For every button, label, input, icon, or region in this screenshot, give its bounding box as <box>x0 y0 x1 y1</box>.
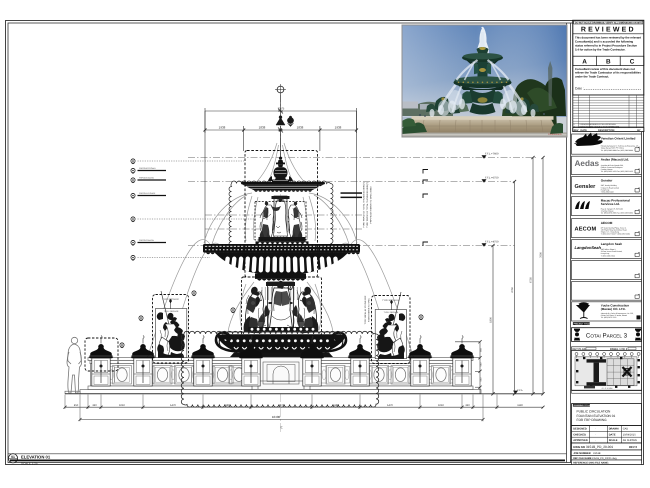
svg-text:TYPE SRP04-01 STATUE FRP: TYPE SRP04-01 STATUE FRP <box>364 295 367 324</box>
svg-text:T 852.2868.9108: T 852.2868.9108 <box>601 191 614 194</box>
svg-text:Gensler: Gensler <box>601 178 613 182</box>
svg-text:ELEVATION 01: ELEVATION 01 <box>21 455 51 460</box>
svg-text:01: 01 <box>11 455 15 459</box>
svg-text:TYPE 'FRP02-01' TOTAL THICKNES: TYPE 'FRP02-01' TOTAL THICKNESS 6MM(T) <box>366 182 369 228</box>
svg-text:F.F.L +7600: F.F.L +7600 <box>485 153 499 156</box>
svg-text:FOR FRP DRAWING: FOR FRP DRAWING <box>577 418 608 422</box>
svg-text:DATE: DATE <box>609 433 616 436</box>
svg-text:1470: 1470 <box>387 404 393 407</box>
svg-text:REV 0: REV 0 <box>629 445 638 449</box>
svg-text:DRAWN: DRAWN <box>609 428 619 431</box>
svg-text:CHECKED: CHECKED <box>573 433 586 436</box>
svg-text:T: (852) 2830 3500: T: (852) 2830 3500 <box>601 254 615 257</box>
svg-text:Tel: (853) 2833 1622 Fax: (85: Tel: (853) 2833 1622 Fax: (853) 2833 163… <box>601 170 633 173</box>
svg-text:Tel: (853) 2878 2896 Fax: (85: Tel: (853) 2878 2896 Fax: (853) 2878 289… <box>601 212 633 215</box>
svg-text:1838: 1838 <box>259 126 266 130</box>
svg-text:Services Ltd.: Services Ltd. <box>601 202 620 206</box>
svg-text:AS SHOWN: AS SHOWN <box>623 439 637 442</box>
svg-text:F.F.L: F.F.L <box>518 389 524 392</box>
svg-text:FRP02-03 BASIN: FRP02-03 BASIN <box>139 239 154 242</box>
svg-text:B: B <box>606 59 611 66</box>
svg-text:JOB NUMBER: JOB NUMBER <box>573 452 591 455</box>
svg-text:06/06/2015: 06/06/2015 <box>580 125 592 128</box>
svg-text:1180: 1180 <box>333 404 339 407</box>
svg-text:DATE: DATE <box>581 129 588 132</box>
svg-text:4750: 4750 <box>511 287 514 293</box>
svg-text:Gensler: Gensler <box>575 183 597 190</box>
svg-text:FRP02-06 CROWN: FRP02-06 CROWN <box>139 167 156 170</box>
svg-text:Aedas (Macau) Ltd.: Aedas (Macau) Ltd. <box>601 157 630 161</box>
svg-text:1838: 1838 <box>297 126 304 130</box>
svg-text:©Fotosearch: ©Fotosearch <box>548 133 562 136</box>
svg-text:10/04/2015: 10/04/2015 <box>623 433 637 436</box>
svg-text:BY: BY <box>637 129 641 132</box>
svg-text:DESIGNED: DESIGNED <box>573 428 587 431</box>
svg-text:Date :: Date : <box>575 87 584 91</box>
svg-text:DWG NO: DWG NO <box>573 445 586 449</box>
svg-text:Venetian Orient Limited: Venetian Orient Limited <box>601 136 636 140</box>
svg-text:-: - <box>595 439 596 442</box>
svg-text:330: 330 <box>92 404 97 407</box>
svg-text:1800: 1800 <box>490 317 493 323</box>
svg-text:SCALE: SCALE <box>609 439 618 442</box>
svg-text:330: 330 <box>465 404 470 407</box>
svg-text:-: - <box>595 433 596 436</box>
svg-text:PUBLIC CIRCULATION: PUBLIC CIRCULATION <box>577 409 611 413</box>
svg-text:0 1 2 5 10M: 0 1 2 5 10M <box>602 387 613 390</box>
svg-text:DESCRIPTION: DESCRIPTION <box>598 129 615 132</box>
svg-text:TYPE:SRP04-01: TYPE:SRP04-01 <box>382 299 399 302</box>
svg-text:DO NOT SCALE DRAWINGS. VERIFY: DO NOT SCALE DRAWINGS. VERIFY ALL DIMENS… <box>575 22 642 25</box>
svg-text:7600: 7600 <box>540 252 543 258</box>
svg-text:COTAI PARCEL 3: COTAI PARCEL 3 <box>586 332 628 339</box>
svg-text:1180: 1180 <box>224 404 230 407</box>
svg-text:TYPE 'FRP02-02' TOTAL THICKNES: TYPE 'FRP02-02' TOTAL THICKNESS 6MM(T) <box>363 182 366 228</box>
svg-text:F.F.L +6750: F.F.L +6750 <box>485 177 499 180</box>
svg-text:TYPE: SRP04-01: TYPE: SRP04-01 <box>384 311 399 314</box>
svg-text:FRP02-04 FIGURE: FRP02-04 FIGURE <box>139 192 156 195</box>
svg-text:1010: 1010 <box>119 404 125 407</box>
svg-text:(Macau) CO. LTD.: (Macau) CO. LTD. <box>601 307 626 311</box>
svg-text:1470: 1470 <box>170 404 176 407</box>
svg-text:REFERENCE DWG FILE NAME:: REFERENCE DWG FILE NAME: <box>573 461 609 464</box>
svg-text:22/05/2015: 22/05/2015 <box>580 123 592 126</box>
svg-text:FOUNTAIN ELEVATION 01: FOUNTAIN ELEVATION 01 <box>577 414 616 418</box>
svg-text:REV: REV <box>574 129 579 132</box>
svg-text:1010: 1010 <box>438 404 444 407</box>
svg-text:1470: 1470 <box>279 404 285 407</box>
svg-text:1130: 1130 <box>517 404 523 407</box>
svg-text:AECOM: AECOM <box>601 221 613 225</box>
svg-text:AECOM: AECOM <box>575 227 597 233</box>
svg-text:APPROVED: APPROVED <box>573 439 588 442</box>
svg-text:ISSUED FOR APPROVAL: ISSUED FOR APPROVAL <box>591 123 617 126</box>
svg-text:1938: 1938 <box>335 126 342 130</box>
svg-text:SCALE 1:25: SCALE 1:25 <box>21 461 38 465</box>
svg-text:FRP02-05 BASIN: FRP02-05 BASIN <box>139 176 154 179</box>
svg-text:A: A <box>582 59 587 66</box>
svg-text:F.F.L +4750: F.F.L +4750 <box>485 241 499 244</box>
svg-text:1938: 1938 <box>219 126 226 130</box>
svg-text:6750: 6750 <box>530 277 533 283</box>
svg-text:RE-ISSUED FOR APPROVAL: RE-ISSUED FOR APPROVAL <box>591 125 621 128</box>
svg-text:Aedas: Aedas <box>575 159 600 168</box>
svg-text:LangdonSeah: LangdonSeah <box>575 245 602 250</box>
svg-text:450: 450 <box>74 404 79 407</box>
svg-text:5.4 for action by the Trade Co: 5.4 for action by the Trade Contractor. <box>575 47 626 51</box>
svg-text:C: C <box>630 59 635 66</box>
svg-text:FRP FINISH REFER TO SPEC 09960: FRP FINISH REFER TO SPEC 09960 <box>370 186 373 224</box>
svg-text:DRAWING TITLE: DRAWING TITLE <box>574 404 591 407</box>
svg-text:-: - <box>595 428 596 431</box>
svg-text:REF FILE NAME: REF FILE NAME <box>573 457 592 460</box>
svg-text:3151B_PD_20001.dwg: 3151B_PD_20001.dwg <box>592 457 617 460</box>
svg-text:Tel: (853) 2875 2133: Tel: (853) 2875 2133 <box>601 316 617 319</box>
svg-text:under the Trade Contract.: under the Trade Contract. <box>575 75 609 79</box>
svg-text:FINISH REFER TO SPEC: FINISH REFER TO SPEC <box>368 297 371 322</box>
svg-text:REVIEWED: REVIEWED <box>581 27 636 34</box>
svg-text:10400: 10400 <box>272 415 281 419</box>
svg-text:Tel: (853) 2882 8888 Fax: (8: Tel: (853) 2882 8888 Fax: (853) 2882 888… <box>601 149 633 152</box>
svg-text:PROJECT TITLE: PROJECT TITLE <box>574 323 591 326</box>
svg-text:3151B: 3151B <box>593 452 601 455</box>
svg-text:T: (852) 2317 7000 F: (852) 2: T: (852) 2317 7000 F: (852) 2353 2680 <box>601 233 630 236</box>
svg-text:CAD: CAD <box>623 428 629 431</box>
svg-text:Langdon Seah: Langdon Seah <box>601 242 622 246</box>
svg-text:7575: 7575 <box>278 107 285 111</box>
svg-text:3151B_PD_20-001: 3151B_PD_20-001 <box>586 445 613 449</box>
svg-text:TYPE:SRP04-02: TYPE:SRP04-02 <box>162 298 179 301</box>
